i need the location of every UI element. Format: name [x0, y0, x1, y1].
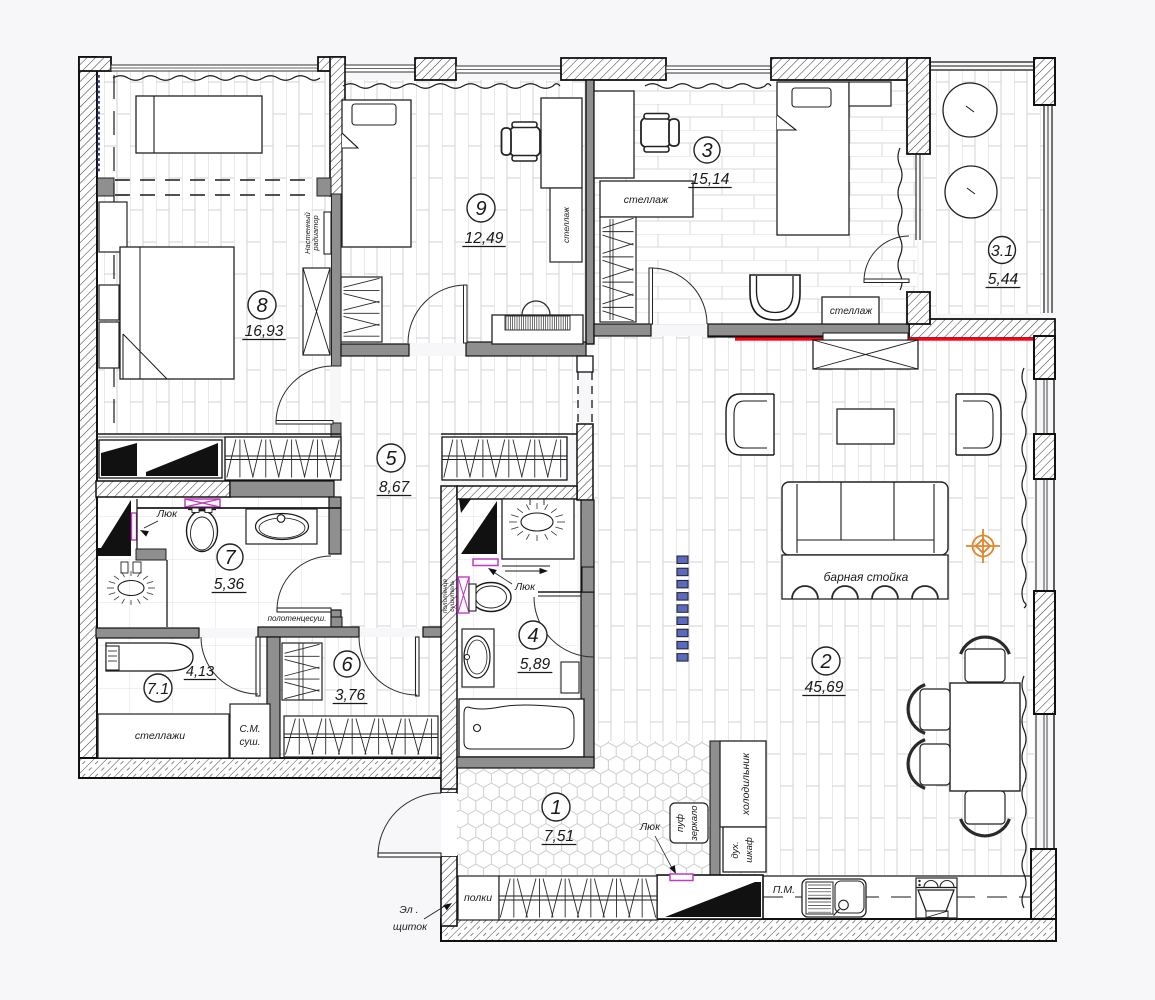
- svg-text:щиток: щиток: [393, 921, 428, 933]
- svg-text:7,51: 7,51: [544, 828, 574, 845]
- svg-text:7.1: 7.1: [147, 681, 169, 698]
- svg-text:С.М.: С.М.: [239, 724, 260, 735]
- svg-text:радиатор: радиатор: [311, 215, 320, 251]
- svg-text:5: 5: [385, 448, 397, 470]
- svg-text:5,36: 5,36: [214, 576, 245, 593]
- svg-text:5,89: 5,89: [520, 656, 551, 673]
- svg-text:2: 2: [819, 651, 831, 673]
- svg-text:холодильник: холодильник: [740, 752, 752, 816]
- svg-text:15,14: 15,14: [691, 171, 730, 188]
- svg-text:12,49: 12,49: [465, 230, 504, 247]
- svg-text:зеркало: зеркало: [689, 805, 700, 841]
- svg-text:9: 9: [475, 198, 486, 220]
- svg-text:дух.: дух.: [730, 841, 741, 858]
- svg-text:4,13: 4,13: [186, 664, 214, 680]
- svg-text:Эл .: Эл .: [399, 904, 418, 916]
- svg-text:6: 6: [341, 654, 353, 676]
- svg-text:Люк: Люк: [514, 581, 536, 593]
- svg-text:полки: полки: [464, 892, 492, 904]
- svg-text:7: 7: [224, 547, 236, 569]
- svg-text:стеллаж: стеллаж: [624, 194, 669, 206]
- svg-text:Люк: Люк: [639, 821, 661, 833]
- svg-text:пуф: пуф: [675, 814, 686, 832]
- svg-text:45,69: 45,69: [805, 679, 844, 696]
- svg-text:3.1: 3.1: [991, 243, 1013, 260]
- svg-text:16,93: 16,93: [245, 323, 284, 340]
- svg-text:полотенцесуш.: полотенцесуш.: [268, 614, 327, 623]
- svg-text:8: 8: [256, 295, 267, 317]
- svg-text:стеллаж: стеллаж: [561, 206, 571, 243]
- svg-text:3: 3: [701, 140, 712, 162]
- svg-text:Люк: Люк: [156, 508, 178, 520]
- svg-text:шкаф: шкаф: [744, 837, 755, 863]
- svg-text:суш.: суш.: [240, 737, 261, 748]
- svg-text:стеллажи: стеллажи: [135, 730, 185, 742]
- svg-text:3,76: 3,76: [335, 687, 366, 704]
- svg-text:полотенце: полотенце: [442, 578, 449, 613]
- svg-text:4: 4: [527, 625, 538, 647]
- svg-text:1: 1: [550, 797, 561, 819]
- svg-text:П.М.: П.М.: [773, 884, 795, 896]
- svg-text:8,67: 8,67: [379, 479, 411, 496]
- svg-text:сушитель: сушитель: [449, 580, 456, 612]
- svg-text:барная стойка: барная стойка: [824, 570, 909, 584]
- svg-text:5,44: 5,44: [988, 271, 1019, 288]
- svg-text:стеллаж: стеллаж: [830, 306, 873, 317]
